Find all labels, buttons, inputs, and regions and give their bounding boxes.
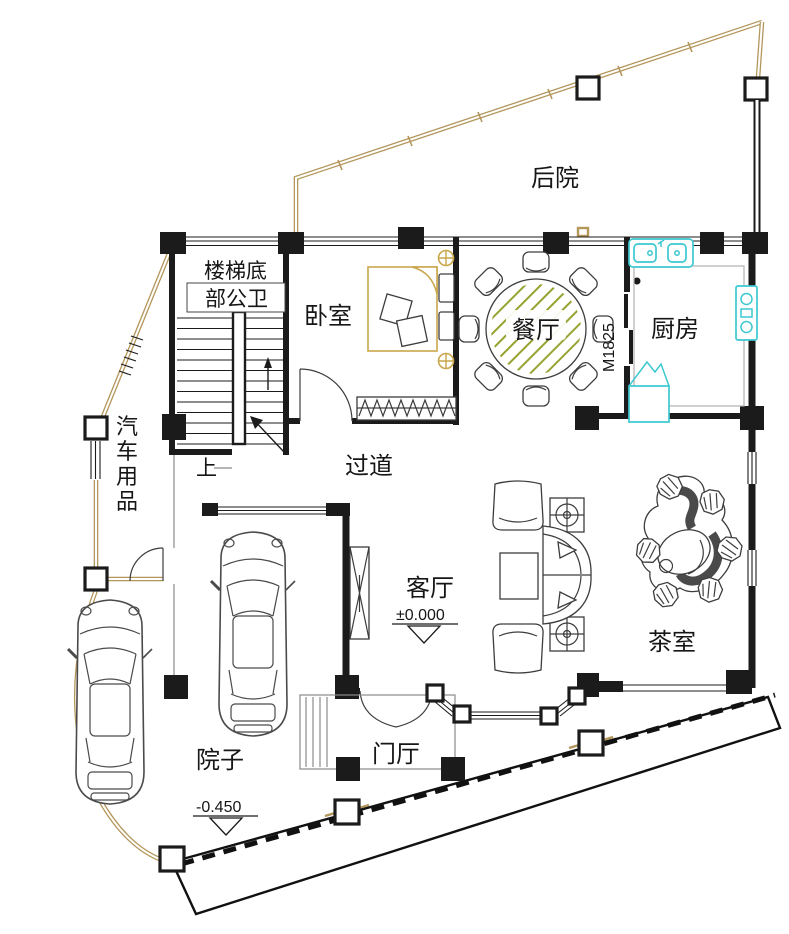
wardrobe	[357, 397, 456, 420]
label-stair-bath-1: 楼梯底	[204, 260, 267, 283]
label-kitchen: 厨房	[651, 316, 699, 343]
yard-elevation-value: -0.450	[196, 799, 241, 816]
fence-post	[745, 78, 767, 100]
porch-steps	[300, 695, 465, 781]
floor-plan-svg: 后院 楼梯底 部公卫 卧室 餐厅 M1825 厨房 汽 车 用 品 上 过道 客…	[0, 0, 789, 934]
bedroom-door	[300, 369, 352, 421]
car-garage	[211, 532, 295, 736]
gate-post	[335, 800, 359, 824]
label-dining: 餐厅	[512, 317, 560, 344]
label-stairs-up: 上	[196, 457, 217, 480]
gate-post	[160, 847, 184, 871]
living-furniture	[493, 481, 591, 673]
label-stair-bath-2: 部公卫	[205, 288, 268, 311]
fence-post	[85, 568, 107, 590]
entry-doors	[360, 691, 432, 727]
living-elevation-marker: ±0.000	[392, 607, 458, 643]
yard-elevation-marker: -0.450	[193, 799, 258, 835]
label-car-supplies: 汽 车 用 品	[116, 414, 144, 514]
bed	[368, 250, 454, 369]
label-yard: 院子	[196, 747, 244, 774]
gate-post	[579, 731, 603, 755]
sofa	[543, 526, 591, 624]
fence-window-left	[91, 441, 100, 479]
floor-plan-page: 后院 楼梯底 部公卫 卧室 餐厅 M1825 厨房 汽 车 用 品 上 过道 客…	[0, 0, 789, 934]
side-gate-door	[130, 548, 163, 581]
bay-window	[427, 685, 585, 724]
garage-equipment	[350, 547, 369, 639]
label-tea-room: 茶室	[648, 629, 696, 656]
living-elevation-value: ±0.000	[396, 607, 445, 624]
kitchen-sink	[629, 239, 693, 267]
label-foyer: 门厅	[372, 741, 420, 768]
label-living: 客厅	[406, 575, 454, 602]
car-yard	[68, 600, 152, 804]
label-backyard: 后院	[531, 165, 579, 192]
tea-table	[634, 473, 742, 611]
label-corridor: 过道	[345, 453, 393, 480]
kitchen-appliance	[629, 362, 669, 422]
kitchen-stove	[736, 286, 757, 340]
label-door-code: M1825	[601, 323, 618, 372]
staircase	[177, 312, 284, 468]
label-bedroom: 卧室	[304, 303, 352, 330]
fence-post	[577, 77, 599, 99]
fence-post	[85, 417, 107, 439]
